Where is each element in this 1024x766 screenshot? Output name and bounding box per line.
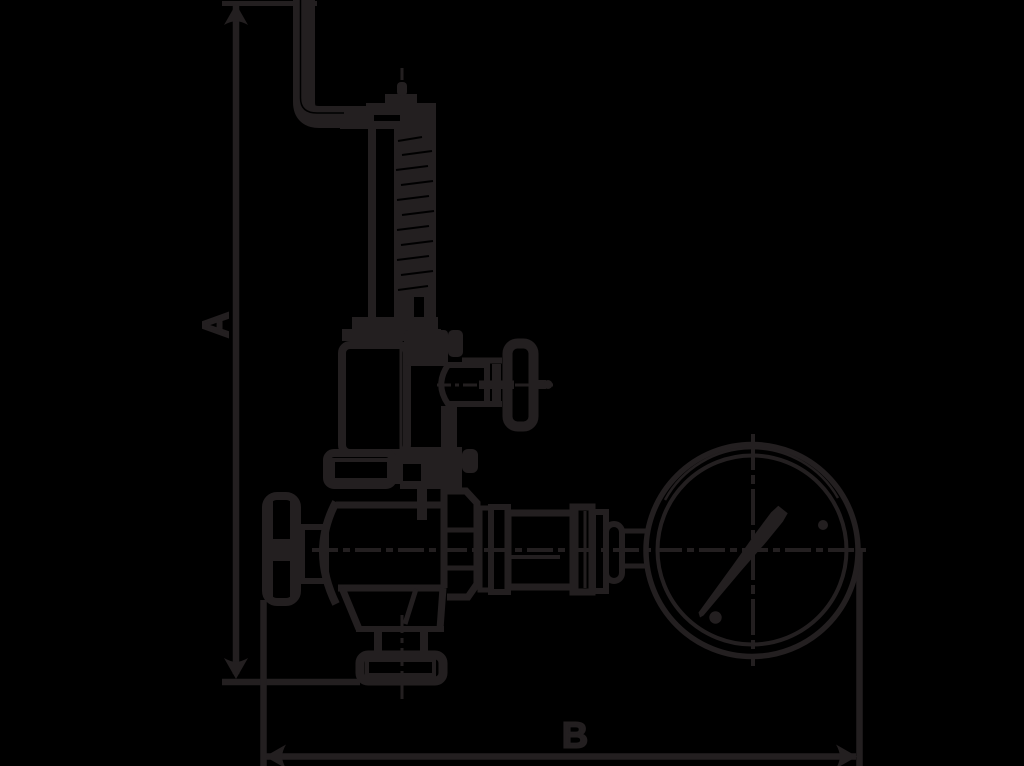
svg-text:B: B [562,715,588,756]
svg-text:A: A [195,312,236,338]
